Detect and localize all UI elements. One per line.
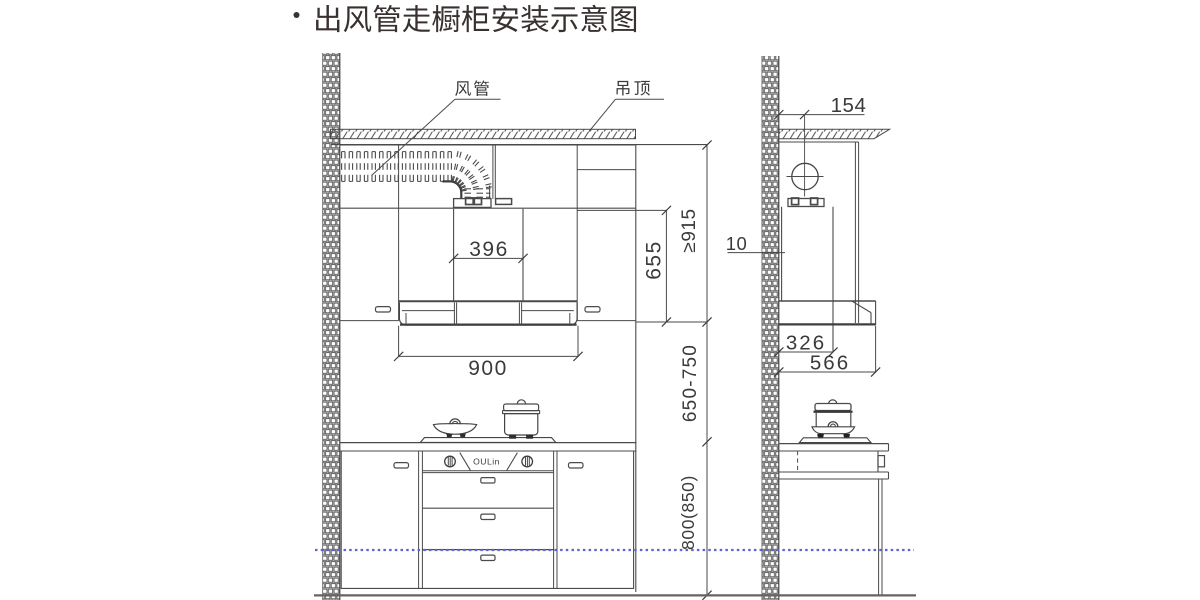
svg-text:655: 655 <box>643 240 666 280</box>
svg-text:650-750: 650-750 <box>680 344 701 422</box>
svg-text:900: 900 <box>468 357 508 380</box>
svg-text:800(850): 800(850) <box>678 475 698 550</box>
svg-text:396: 396 <box>469 238 509 261</box>
svg-text:566: 566 <box>810 352 850 375</box>
svg-text:≥915: ≥915 <box>679 208 700 252</box>
svg-text:OULin: OULin <box>473 456 500 466</box>
svg-text:154: 154 <box>831 94 867 117</box>
svg-text:10: 10 <box>726 233 748 254</box>
